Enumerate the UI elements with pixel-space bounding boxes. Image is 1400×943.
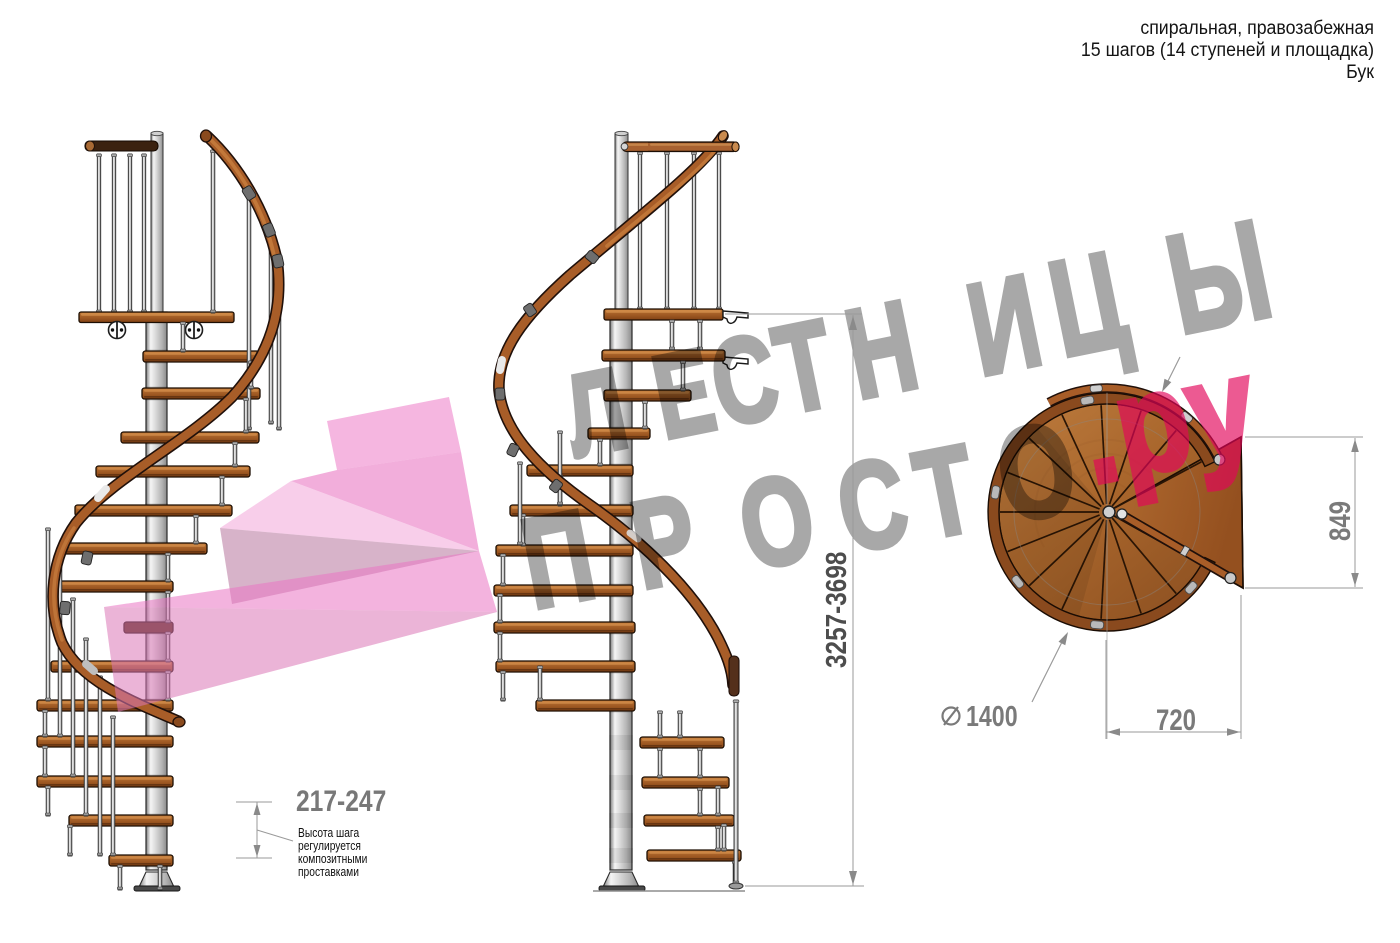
svg-text:композитными: композитными — [298, 853, 367, 866]
svg-text:720: 720 — [1156, 702, 1196, 736]
svg-text:217-247: 217-247 — [296, 784, 386, 818]
svg-text:3257-3698: 3257-3698 — [820, 551, 852, 668]
svg-text:1400: 1400 — [966, 699, 1018, 732]
svg-text:849: 849 — [1322, 501, 1356, 541]
svg-text:Бук: Бук — [1346, 60, 1375, 82]
svg-text:15 шагов (14 ступеней и площад: 15 шагов (14 ступеней и площадка) — [1081, 38, 1374, 60]
svg-text:проставками: проставками — [298, 866, 359, 879]
svg-text:спиральная, правозабежная: спиральная, правозабежная — [1140, 16, 1374, 38]
svg-text:регулируется: регулируется — [298, 840, 361, 853]
svg-text:Высота шага: Высота шага — [298, 827, 360, 840]
